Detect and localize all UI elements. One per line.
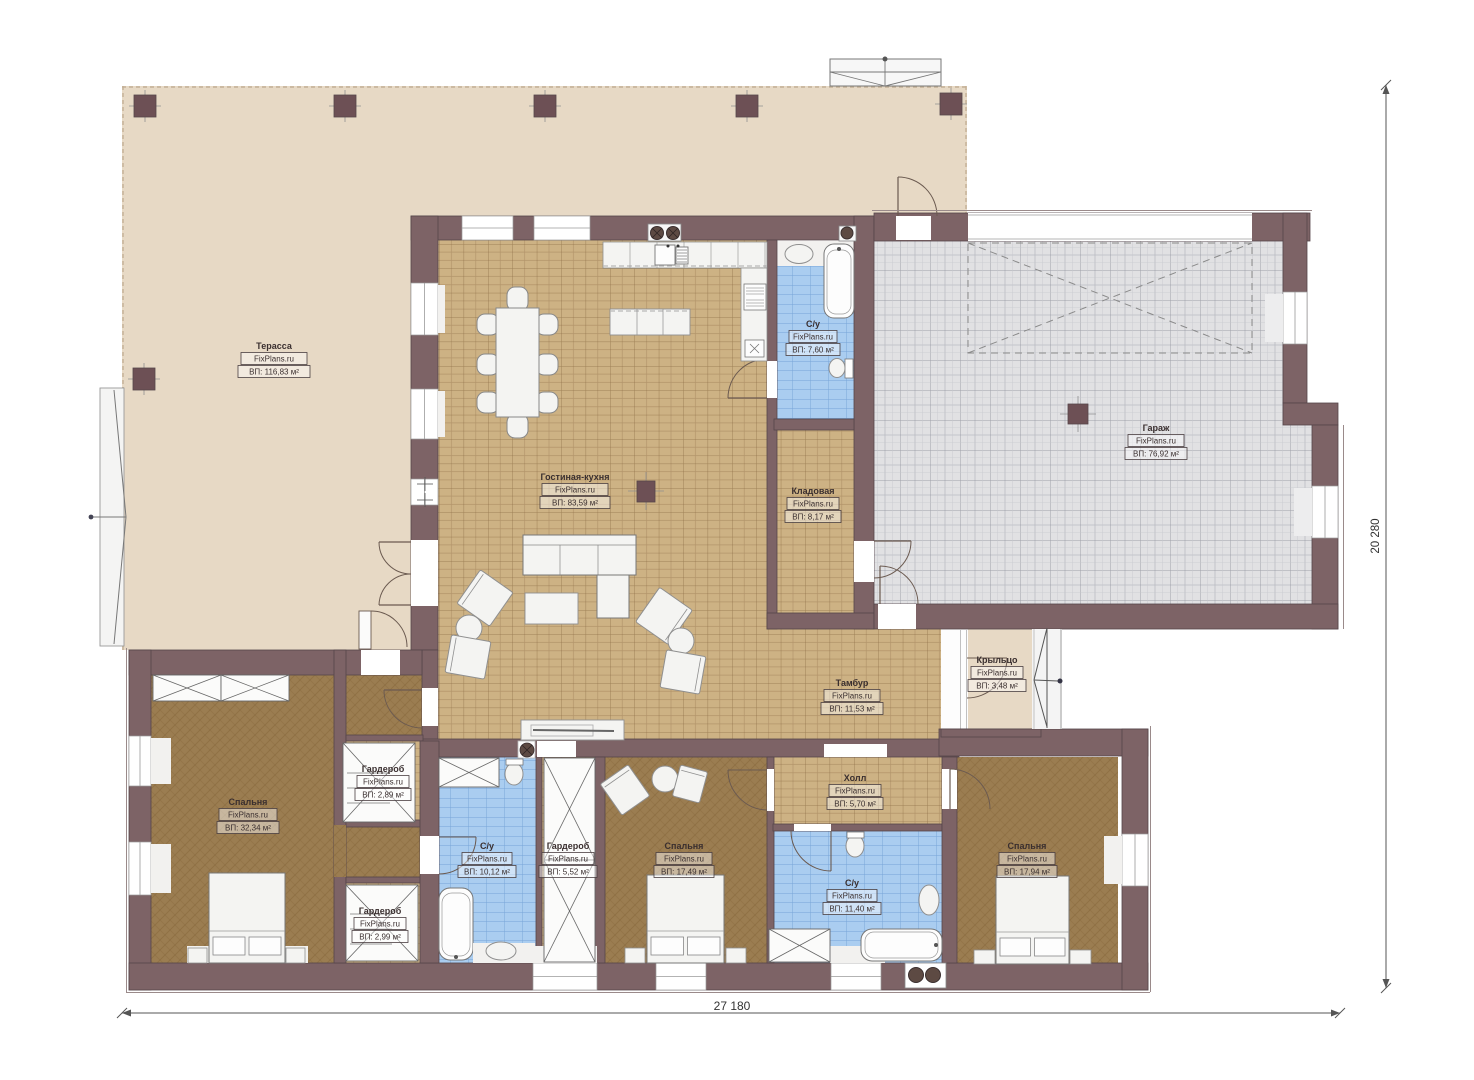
svg-text:Гараж: Гараж xyxy=(1143,423,1170,433)
svg-text:FixPlans.ru: FixPlans.ru xyxy=(664,855,704,864)
svg-text:Спальня: Спальня xyxy=(229,797,268,807)
svg-text:ВП: 7,60 м²: ВП: 7,60 м² xyxy=(792,346,834,355)
svg-text:Терасса: Терасса xyxy=(256,341,293,351)
svg-text:Спальня: Спальня xyxy=(1008,841,1047,851)
svg-text:ВП: 76,92 м²: ВП: 76,92 м² xyxy=(1133,450,1179,459)
svg-text:ВП: 8,17 м²: ВП: 8,17 м² xyxy=(792,513,834,522)
svg-text:С/у: С/у xyxy=(806,319,820,329)
svg-text:ВП: 2,99 м²: ВП: 2,99 м² xyxy=(359,933,401,942)
svg-text:FixPlans.ru: FixPlans.ru xyxy=(360,920,400,929)
svg-text:С/у: С/у xyxy=(480,841,494,851)
svg-text:ВП: 11,40 м²: ВП: 11,40 м² xyxy=(829,905,875,914)
svg-text:FixPlans.ru: FixPlans.ru xyxy=(835,787,875,796)
svg-text:ВП: 11,53 м²: ВП: 11,53 м² xyxy=(829,705,875,714)
svg-text:27 180: 27 180 xyxy=(714,999,751,1013)
svg-text:FixPlans.ru: FixPlans.ru xyxy=(254,355,294,364)
svg-text:С/у: С/у xyxy=(845,878,859,888)
svg-text:Крыльцо: Крыльцо xyxy=(977,655,1018,665)
svg-text:FixPlans.ru: FixPlans.ru xyxy=(548,855,588,864)
svg-text:ВП: 116,83 м²: ВП: 116,83 м² xyxy=(249,368,299,377)
svg-text:FixPlans.ru: FixPlans.ru xyxy=(1007,855,1047,864)
svg-text:ВП: 32,34 м²: ВП: 32,34 м² xyxy=(225,824,271,833)
svg-text:Гардероб: Гардероб xyxy=(547,841,590,851)
svg-text:FixPlans.ru: FixPlans.ru xyxy=(793,500,833,509)
svg-text:Гардероб: Гардероб xyxy=(362,764,405,774)
svg-text:Спальня: Спальня xyxy=(665,841,704,851)
svg-text:FixPlans.ru: FixPlans.ru xyxy=(832,892,872,901)
svg-text:20 280: 20 280 xyxy=(1370,518,1382,553)
svg-text:Тамбур: Тамбур xyxy=(836,678,869,688)
svg-text:Холл: Холл xyxy=(844,773,867,783)
svg-text:FixPlans.ru: FixPlans.ru xyxy=(977,669,1017,678)
svg-text:ВП: 5,70 м²: ВП: 5,70 м² xyxy=(834,800,876,809)
svg-text:ВП: 2,89 м²: ВП: 2,89 м² xyxy=(362,791,404,800)
svg-text:FixPlans.ru: FixPlans.ru xyxy=(1136,437,1176,446)
svg-text:ВП: 83,59 м²: ВП: 83,59 м² xyxy=(552,499,598,508)
svg-text:ВП: 5,52 м²: ВП: 5,52 м² xyxy=(547,868,589,877)
svg-text:ВП: 10,12 м²: ВП: 10,12 м² xyxy=(464,868,510,877)
svg-text:FixPlans.ru: FixPlans.ru xyxy=(363,778,403,787)
svg-text:FixPlans.ru: FixPlans.ru xyxy=(228,811,268,820)
svg-text:Гостиная-кухня: Гостиная-кухня xyxy=(541,472,610,482)
svg-text:ВП: 3,48 м²: ВП: 3,48 м² xyxy=(976,682,1018,691)
svg-text:FixPlans.ru: FixPlans.ru xyxy=(793,333,833,342)
svg-text:ВП: 17,49 м²: ВП: 17,49 м² xyxy=(661,868,707,877)
svg-text:FixPlans.ru: FixPlans.ru xyxy=(555,486,595,495)
svg-text:Кладовая: Кладовая xyxy=(791,486,834,496)
svg-text:Гардероб: Гардероб xyxy=(359,906,402,916)
svg-text:ВП: 17,94 м²: ВП: 17,94 м² xyxy=(1004,868,1050,877)
svg-text:FixPlans.ru: FixPlans.ru xyxy=(467,855,507,864)
svg-text:FixPlans.ru: FixPlans.ru xyxy=(832,692,872,701)
